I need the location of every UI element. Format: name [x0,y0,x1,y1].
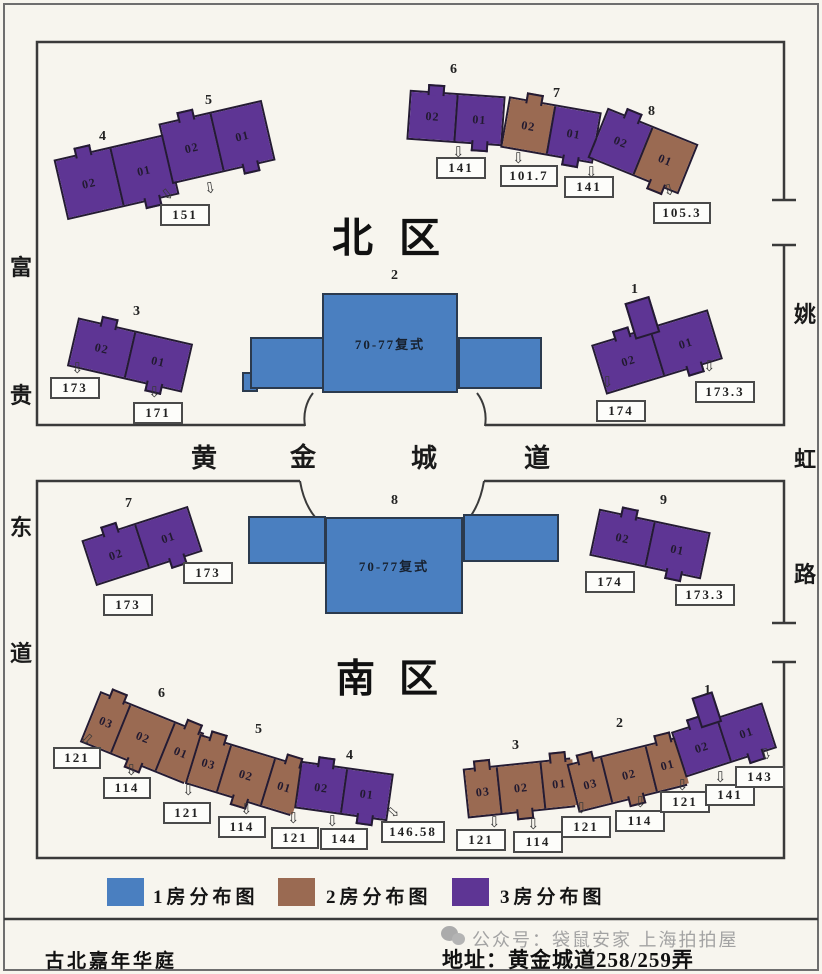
area-label-sr121a: 121 [456,829,506,851]
north-zone-title: 北区 [332,204,466,264]
legend-swatch-2room [278,878,315,906]
area-label-sr114b: 114 [615,810,665,832]
unit-number: 02 [107,545,125,564]
building-number-s1: 1 [704,683,711,699]
unit-number: 02 [513,780,528,796]
building-number-s7: 7 [125,496,132,512]
unit-number: 02 [237,766,255,784]
duplex-label: 70-77复式 [355,334,425,353]
building-n2-part [250,337,324,389]
area-label-sr143: 143 [735,766,785,788]
down-arrow-icon: ⇩ [452,146,465,160]
unit-number: 01 [136,162,153,180]
street-middle-char: 金 [290,437,316,474]
down-arrow-icon: ⇩ [703,360,716,374]
area-label-n173_3: 173.3 [695,381,755,403]
unit-number: 01 [669,541,686,559]
unit-number: 01 [150,353,167,371]
unit-number: 01 [275,778,293,796]
down-arrow-icon: ⇩ [182,784,195,798]
unit-number: 02 [611,132,630,151]
building-number-n5: 5 [205,93,212,109]
down-arrow-icon: ⇩ [125,764,138,778]
building-s8-part: 70-77复式 [325,517,463,614]
unit-number: 02 [313,779,329,796]
street-east-char: 路 [794,557,816,589]
building-number-s6: 6 [158,686,165,702]
south-zone-title: 南区 [336,648,462,704]
area-label-sl146_58: 146.58 [381,821,445,843]
building-number-n4: 4 [99,129,106,145]
legend: 1房分布图 2房分布图 3房分布图 [0,872,822,914]
legend-label-1room: 1房分布图 [153,882,259,909]
area-label-s173_3: 173.3 [675,584,735,606]
street-west-char: 贵 [10,378,32,410]
street-west-char: 富 [10,250,32,282]
down-arrow-icon: ⇩ [148,386,161,400]
area-label-n171: 171 [133,402,183,424]
down-arrow-icon: ⇩ [527,818,540,832]
legend-label-3room: 3房分布图 [500,882,606,909]
building-s3-unit-02: 02 [496,763,544,813]
area-label-sr121b: 121 [561,816,611,838]
area-label-n173: 173 [50,377,100,399]
street-middle-char: 城 [411,438,437,475]
area-label-s173b: 173 [103,594,153,616]
footer: 古北嘉年华庭 公众号：袋鼠安家 上海拍拍屋 地址：黄金城道258/259弄 [0,922,822,974]
unit-number: 01 [737,723,755,742]
building-n2-part: 70-77复式 [322,293,458,393]
unit-number: 01 [159,528,177,547]
building-number-s2: 2 [616,716,623,732]
unit-number: 01 [472,112,487,128]
down-arrow-icon: ⇩ [601,376,614,390]
building-n2-part [458,337,542,389]
down-arrow-icon: ⇩ [488,816,501,830]
area-label-sr121c: 121 [660,791,710,813]
area-label-sl121a: 121 [53,747,101,769]
down-arrow-icon: ⇩ [203,181,218,197]
area-label-n151: 151 [160,204,210,226]
down-arrow-icon: ⇩ [287,812,300,826]
area-label-sl114b: 114 [218,816,266,838]
unit-number: 02 [80,174,97,192]
street-middle-char: 道 [524,438,550,475]
building-s8-part [248,516,326,564]
street-west-char: 道 [10,636,32,668]
building-n6: 0201 [406,90,505,147]
area-label-sl121c: 121 [271,827,319,849]
unit-number: 02 [619,352,637,370]
building-number-s5: 5 [255,722,262,738]
building-s8-part [463,514,559,562]
area-label-sl144: 144 [320,828,368,850]
street-west-char: 东 [10,510,32,542]
building-s4-unit-02: 02 [296,763,346,813]
down-arrow-icon: ⇩ [512,152,525,166]
unit-number: 03 [475,784,490,800]
unit-number: 01 [677,334,695,352]
down-arrow-icon: ⇩ [714,771,727,785]
unit-number: 02 [134,728,153,747]
building-n6-unit-02: 02 [409,92,457,141]
unit-number: 01 [551,776,566,792]
legend-swatch-3room [452,878,489,906]
unit-number: 01 [565,125,581,142]
unit-number: 02 [614,529,631,547]
unit-number: 01 [359,786,375,803]
street-middle-char: 黄 [191,438,217,475]
building-number-n6: 6 [450,62,457,78]
area-label-n105_3: 105.3 [653,202,711,224]
duplex-label: 70-77复式 [359,556,429,575]
unit-number: 01 [171,744,190,763]
area-label-sl114a: 114 [103,777,151,799]
area-label-n174: 174 [596,400,646,422]
unit-number: 03 [582,775,599,793]
building-s9-unit-02: 02 [592,511,654,565]
building-s3-unit-03: 03 [465,767,501,816]
area-label-n101_7: 101.7 [500,165,558,187]
building-number-s9: 9 [660,493,667,509]
legend-label-2room: 2房分布图 [326,882,432,909]
area-label-sr114a: 114 [513,831,563,853]
building-number-s3: 3 [512,738,519,754]
legend-swatch-1room [107,878,144,906]
building-s9-unit-01: 01 [644,522,708,577]
building-number-n8: 8 [648,104,655,120]
area-label-s174: 174 [585,571,635,593]
unit-number: 02 [693,738,711,757]
building-number-s8: 8 [391,493,398,509]
down-arrow-icon: ⇩ [326,815,339,829]
north-gate-arcs [304,393,485,426]
building-number-s4: 4 [346,748,353,764]
street-east-char: 虹 [794,442,816,474]
unit-number: 02 [520,117,536,134]
address-label: 地址：黄金城道258/259弄 [442,944,694,974]
building-number-n7: 7 [553,86,560,102]
unit-number: 03 [97,713,116,732]
building-n5: 0201 [158,100,275,184]
building-n6-unit-01: 01 [453,95,503,144]
community-name: 古北嘉年华庭 [45,946,177,973]
down-arrow-icon: ⇩ [575,802,588,816]
down-arrow-icon: ⇩ [585,166,598,180]
community-map: 北区 南区 富 贵 东 道 黄 金 城 道 姚 虹 路 1房分布图 2房分布图 … [0,0,822,974]
down-arrow-icon: ⇩ [240,803,253,817]
building-number-n3: 3 [133,304,140,320]
area-label-s173a: 173 [183,562,233,584]
unit-number: 02 [425,108,440,124]
unit-number: 03 [200,755,218,773]
building-number-n2: 2 [391,268,398,284]
building-number-n1: 1 [631,282,638,298]
unit-number: 02 [93,340,110,358]
unit-number: 02 [183,139,200,157]
building-n3-unit-01: 01 [124,332,191,390]
unit-number: 01 [656,150,675,169]
area-label-sl121b: 121 [163,802,211,824]
street-east-char: 姚 [794,297,816,329]
down-arrow-icon: ⇩ [634,796,647,810]
unit-number: 01 [659,756,676,774]
unit-number: 02 [620,766,637,784]
down-arrow-icon: ⇩ [676,779,689,793]
down-arrow-icon: ⇩ [71,362,84,376]
unit-number: 01 [234,127,251,145]
